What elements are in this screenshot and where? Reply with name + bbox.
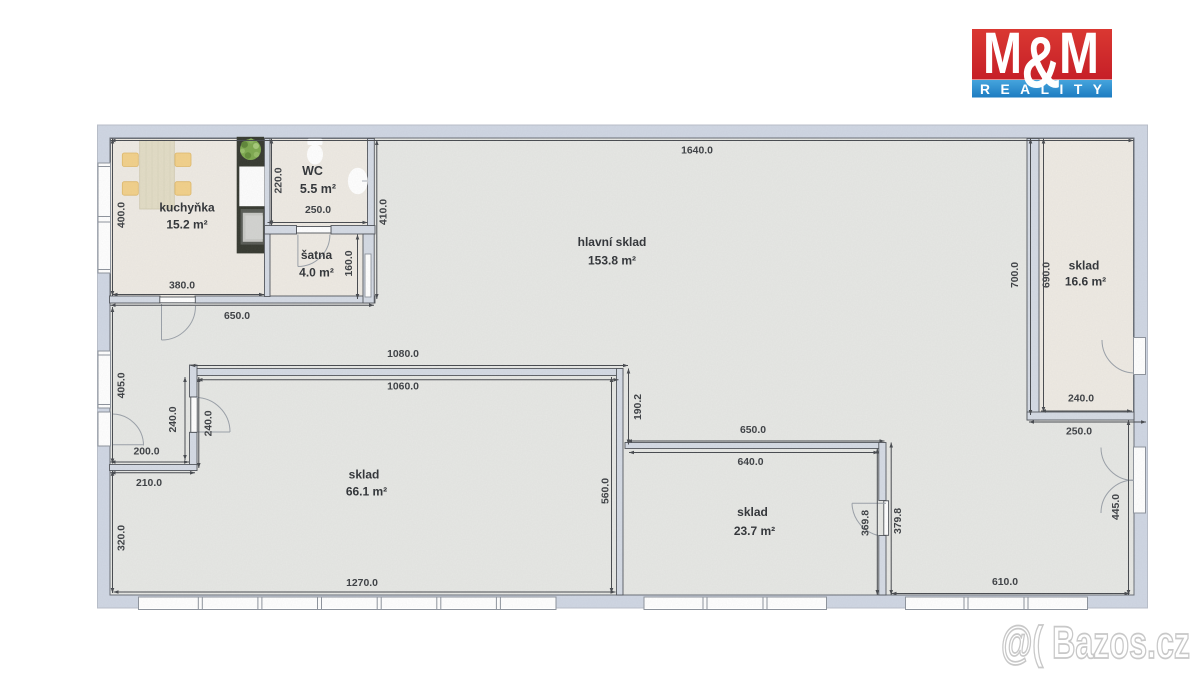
svg-text:@( Bazos.cz: @( Bazos.cz [1001,617,1190,668]
svg-text:M: M [983,21,1022,86]
svg-text:M: M [1059,21,1099,86]
